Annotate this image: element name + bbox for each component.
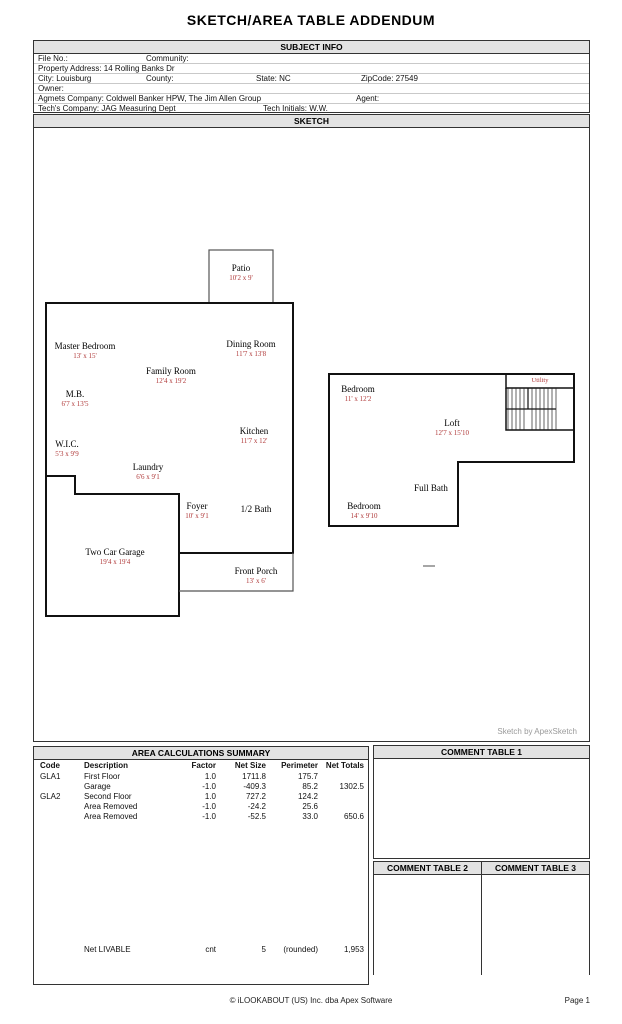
field-file-no: File No.: [38, 54, 68, 64]
area-table-row: Area Removed -1.0 -24.2 25.6 [34, 802, 368, 812]
field-owner: Owner: [38, 84, 64, 94]
room-label-half-bath: 1/2 Bath [241, 504, 272, 514]
comment-tables-2-3: COMMENT TABLE 2 COMMENT TABLE 3 [373, 861, 590, 975]
room-label-wic: W.I.C. 5'3 x 9'9 [55, 439, 79, 458]
field-techs-company: Tech's Company: JAG Measuring Dept [38, 104, 176, 114]
field-county: County: [146, 74, 174, 84]
room-label-dining-room: Dining Room 11'7 x 13'8 [226, 339, 275, 358]
sketch-section: SKETCH [33, 114, 590, 742]
room-label-full-bath: Full Bath [414, 483, 448, 493]
col-code: Code [40, 760, 84, 772]
col-net-size: Net Size [216, 760, 266, 772]
subject-info-row: Agmets Company: Coldwell Banker HPW, The… [34, 94, 589, 104]
subject-info-row: City: Louisburg County: State: NC ZipCod… [34, 74, 589, 84]
subject-info-row: Tech's Company: JAG Measuring Dept Tech … [34, 104, 589, 114]
field-community: Community: [146, 54, 189, 64]
net-livable-note: (rounded) [266, 945, 318, 955]
field-zipcode: ZipCode: 27549 [361, 74, 418, 84]
field-tech-initials: Tech Initials: W.W. [263, 104, 328, 114]
garage-wall [46, 476, 179, 553]
subject-info-row: Owner: [34, 84, 589, 94]
room-label-mb: M.B. 6'7 x 13'5 [61, 389, 88, 408]
area-calculations-header: AREA CALCULATIONS SUMMARY [34, 747, 368, 760]
room-label-loft: Loft 12'7 x 15'10 [435, 418, 469, 437]
room-label-foyer: Foyer 10' x 9'1 [185, 501, 209, 520]
room-label-utility: Utility [532, 377, 549, 384]
sketch-header: SKETCH [34, 115, 589, 128]
net-livable-label: Net LIVABLE [84, 945, 172, 955]
subject-info-row: File No.: Community: [34, 54, 589, 64]
footer-page-number: Page 1 [565, 996, 590, 1005]
subject-info-section: SUBJECT INFO File No.: Community: Proper… [33, 40, 590, 113]
area-table-row: GLA1 First Floor 1.0 1711.8 175.7 [34, 772, 368, 782]
comment-table-1: COMMENT TABLE 1 [373, 745, 590, 859]
subject-info-header: SUBJECT INFO [34, 41, 589, 54]
room-label-kitchen: Kitchen 11'7 x 12' [240, 426, 269, 445]
area-table-column-headers: Code Description Factor Net Size Perimet… [34, 760, 368, 772]
comment-table-2: COMMENT TABLE 2 [374, 862, 481, 975]
room-label-laundry: Laundry 6'6 x 9'1 [133, 462, 164, 481]
net-livable-total: 1,953 [318, 945, 364, 955]
room-label-garage: Two Car Garage 19'4 x 19'4 [85, 547, 144, 566]
net-livable-count: 5 [216, 945, 266, 955]
area-table-row: Garage -1.0 -409.3 85.2 1302.5 [34, 782, 368, 792]
footer-copyright: © iLOOKABOUT (US) Inc. dba Apex Software [0, 996, 622, 1005]
net-livable-row: Net LIVABLE cnt 5 (rounded) 1,953 [34, 945, 368, 955]
col-net-totals: Net Totals [318, 760, 364, 772]
field-agents-company: Agmets Company: Coldwell Banker HPW, The… [38, 94, 261, 104]
col-perimeter: Perimeter [266, 760, 318, 772]
subject-info-row: Property Address: 14 Rolling Banks Dr [34, 64, 589, 74]
area-table-row: GLA2 Second Floor 1.0 727.2 124.2 [34, 792, 368, 802]
staircase [506, 388, 574, 430]
comment-table-1-header: COMMENT TABLE 1 [374, 746, 589, 759]
field-property-address: Property Address: 14 Rolling Banks Dr [38, 64, 175, 74]
comment-table-2-header: COMMENT TABLE 2 [374, 862, 481, 875]
room-label-bedroom-lower: Bedroom 14' x 9'10 [347, 501, 381, 520]
area-calculations-section: AREA CALCULATIONS SUMMARY Code Descripti… [33, 746, 369, 985]
room-label-front-porch: Front Porch 13' x 6' [235, 566, 278, 585]
comment-table-3-header: COMMENT TABLE 3 [482, 862, 589, 875]
area-table-row: Area Removed -1.0 -52.5 33.0 650.6 [34, 812, 368, 822]
sketch-credit: Sketch by ApexSketch [497, 727, 577, 736]
col-description: Description [84, 760, 172, 772]
field-state: State: NC [256, 74, 291, 84]
field-city: City: Louisburg [38, 74, 91, 84]
room-label-patio: Patio 10'2 x 9' [229, 263, 253, 282]
floor-plan-drawing [34, 128, 589, 741]
floor-plan-canvas: Patio 10'2 x 9' Master Bedroom 13' x 15'… [34, 128, 589, 741]
page: SKETCH/AREA TABLE ADDENDUM SUBJECT INFO … [0, 0, 622, 1024]
room-label-master-bedroom: Master Bedroom 13' x 15' [55, 341, 116, 360]
room-label-family-room: Family Room 12'4 x 19'2 [146, 366, 196, 385]
page-title: SKETCH/AREA TABLE ADDENDUM [0, 12, 622, 28]
field-agent: Agent: [356, 94, 379, 104]
room-label-bedroom-upper: Bedroom 11' x 12'2 [341, 384, 375, 403]
comment-table-3: COMMENT TABLE 3 [481, 862, 589, 975]
col-factor: Factor [172, 760, 216, 772]
net-livable-unit: cnt [172, 945, 216, 955]
